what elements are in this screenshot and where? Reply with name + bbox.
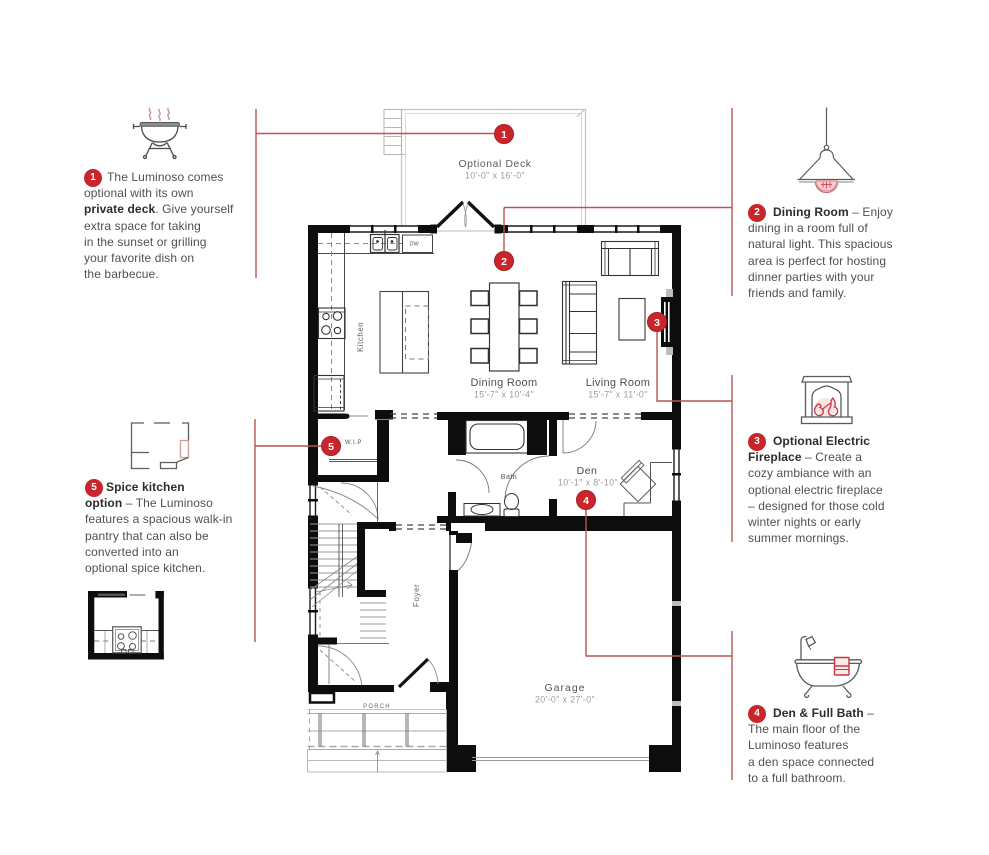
svg-text:15'-7" x 11'-0": 15'-7" x 11'-0"	[588, 390, 647, 400]
svg-text:Foyer: Foyer	[412, 584, 421, 607]
svg-text:10'-0" x 16'-0": 10'-0" x 16'-0"	[465, 171, 525, 181]
svg-text:Kitchen: Kitchen	[356, 322, 365, 352]
svg-text:10'-1" x 8'-10": 10'-1" x 8'-10"	[558, 478, 618, 488]
svg-text:20'-0" x 27'-0": 20'-0" x 27'-0"	[535, 695, 595, 705]
svg-text:Den: Den	[577, 465, 598, 477]
svg-text:15'-7" x 10'-4": 15'-7" x 10'-4"	[474, 390, 534, 400]
svg-text:3: 3	[654, 317, 660, 329]
svg-text:W.I.P: W.I.P	[345, 440, 362, 446]
svg-text:DW: DW	[410, 242, 420, 248]
svg-text:Living Room: Living Room	[586, 377, 650, 389]
svg-text:4: 4	[583, 495, 589, 507]
svg-text:1: 1	[501, 129, 507, 141]
svg-text:Garage: Garage	[544, 682, 585, 694]
svg-text:Bath: Bath	[501, 474, 517, 481]
svg-text:Optional Deck: Optional Deck	[458, 159, 531, 170]
svg-text:PORCH: PORCH	[363, 704, 391, 710]
svg-text:Dining Room: Dining Room	[471, 377, 538, 389]
svg-text:5: 5	[328, 441, 334, 453]
svg-text:2: 2	[501, 256, 507, 268]
